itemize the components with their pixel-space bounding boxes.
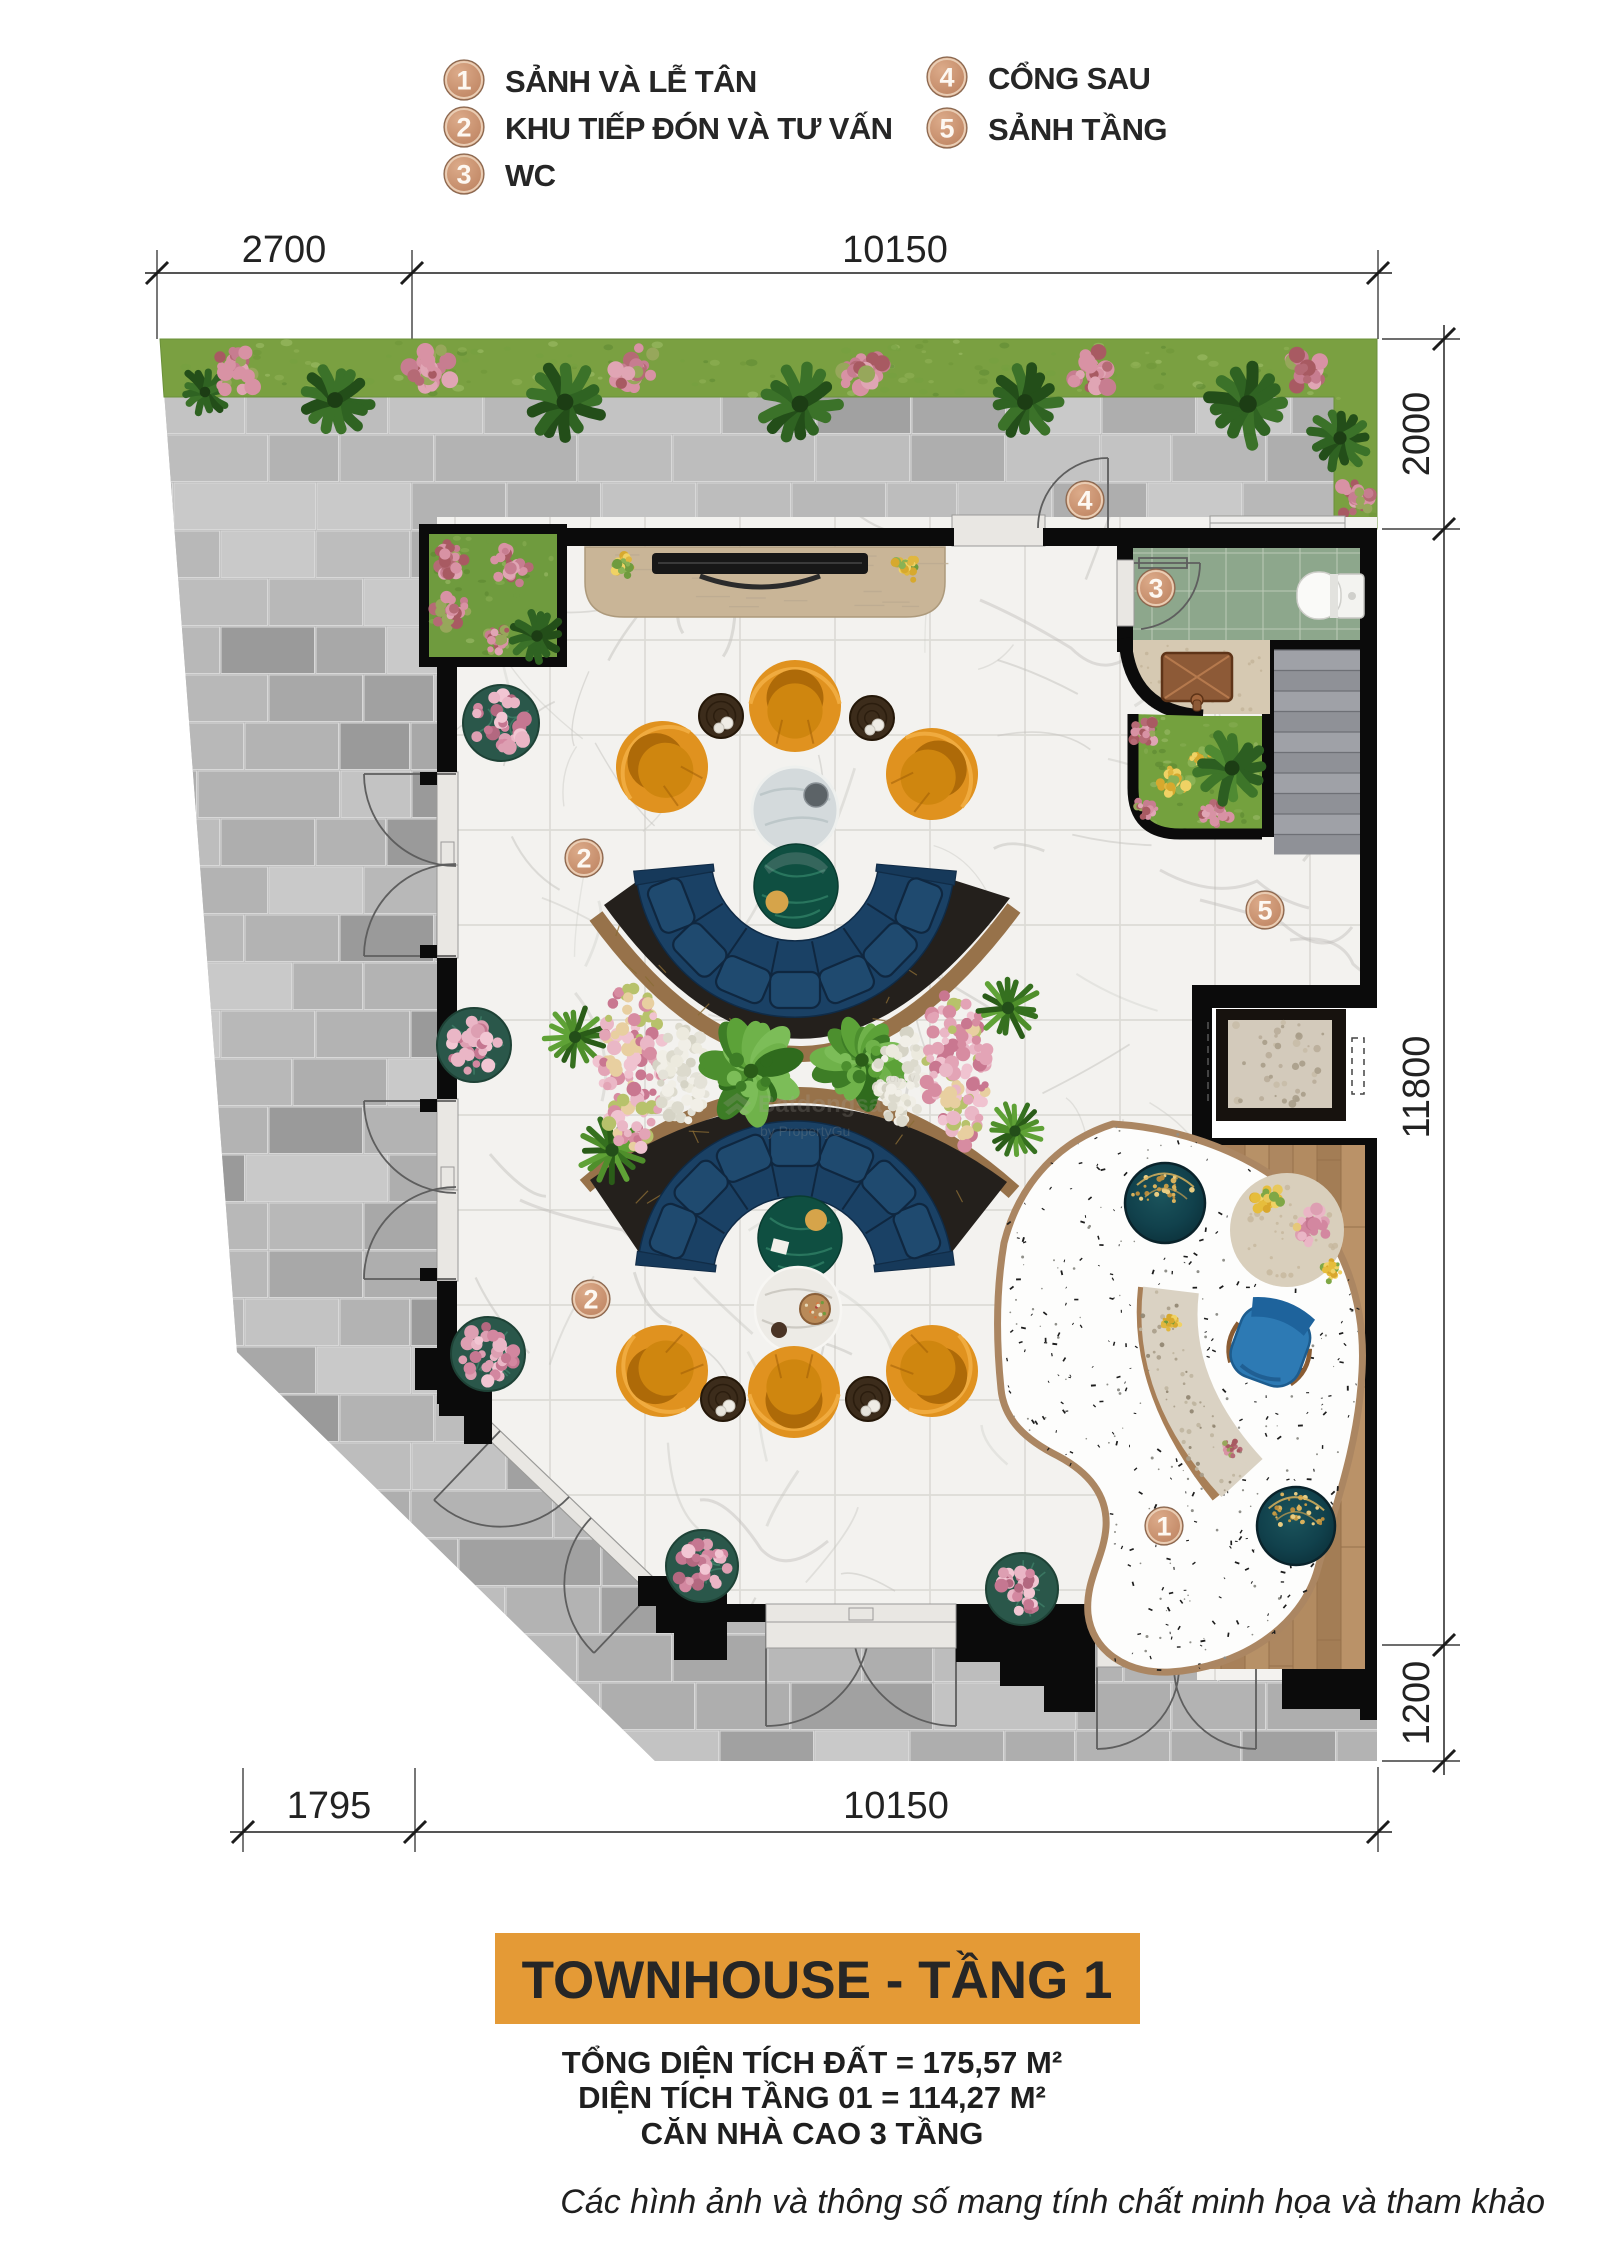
svg-text:2: 2 <box>576 843 591 873</box>
svg-text:3: 3 <box>456 159 471 189</box>
svg-text:WC: WC <box>505 158 556 193</box>
svg-text:CĂN NHÀ CAO 3 TẦNG: CĂN NHÀ CAO 3 TẦNG <box>641 2116 984 2151</box>
svg-text:1795: 1795 <box>287 1785 372 1827</box>
svg-text:2: 2 <box>456 112 471 142</box>
svg-text:2700: 2700 <box>242 229 327 271</box>
svg-text:4: 4 <box>1077 485 1092 515</box>
svg-text:10150: 10150 <box>843 1785 949 1827</box>
svg-text:11800: 11800 <box>1396 1036 1438 1139</box>
svg-text:1: 1 <box>1156 1511 1171 1541</box>
svg-text:4: 4 <box>939 62 954 92</box>
svg-text:2: 2 <box>583 1284 598 1314</box>
svg-text:10150: 10150 <box>842 229 948 271</box>
svg-text:5: 5 <box>1257 895 1272 925</box>
svg-text:CỔNG SAU: CỔNG SAU <box>988 60 1150 96</box>
svg-text:Các hình ảnh và thông số mang: Các hình ảnh và thông số mang tính chất … <box>560 2183 1545 2221</box>
svg-text:1200: 1200 <box>1396 1661 1438 1746</box>
svg-text:3: 3 <box>1148 573 1163 603</box>
svg-text:SẢNH VÀ LỄ TÂN: SẢNH VÀ LỄ TÂN <box>505 63 757 99</box>
svg-text:TOWNHOUSE - TẦNG 1: TOWNHOUSE - TẦNG 1 <box>522 1950 1113 2010</box>
svg-text:TỔNG DIỆN TÍCH ĐẤT = 175,57 M: TỔNG DIỆN TÍCH ĐẤT = 175,57 M² <box>562 2044 1062 2080</box>
svg-text:KHU TIẾP ĐÓN VÀ TƯ VẤN: KHU TIẾP ĐÓN VÀ TƯ VẤN <box>505 110 892 146</box>
svg-text:1: 1 <box>456 65 471 95</box>
svg-text:by PropertyGu: by PropertyGu <box>760 1123 850 1139</box>
svg-text:DIỆN TÍCH TẦNG 01 = 114,27 M²: DIỆN TÍCH TẦNG 01 = 114,27 M² <box>578 2079 1046 2115</box>
svg-text:.com.v: .com.v <box>880 1071 915 1085</box>
svg-text:Batdongsa: Batdongsa <box>758 1091 883 1118</box>
svg-text:SẢNH TẦNG: SẢNH TẦNG <box>988 112 1167 147</box>
svg-text:2000: 2000 <box>1396 392 1438 477</box>
svg-text:5: 5 <box>939 113 954 143</box>
